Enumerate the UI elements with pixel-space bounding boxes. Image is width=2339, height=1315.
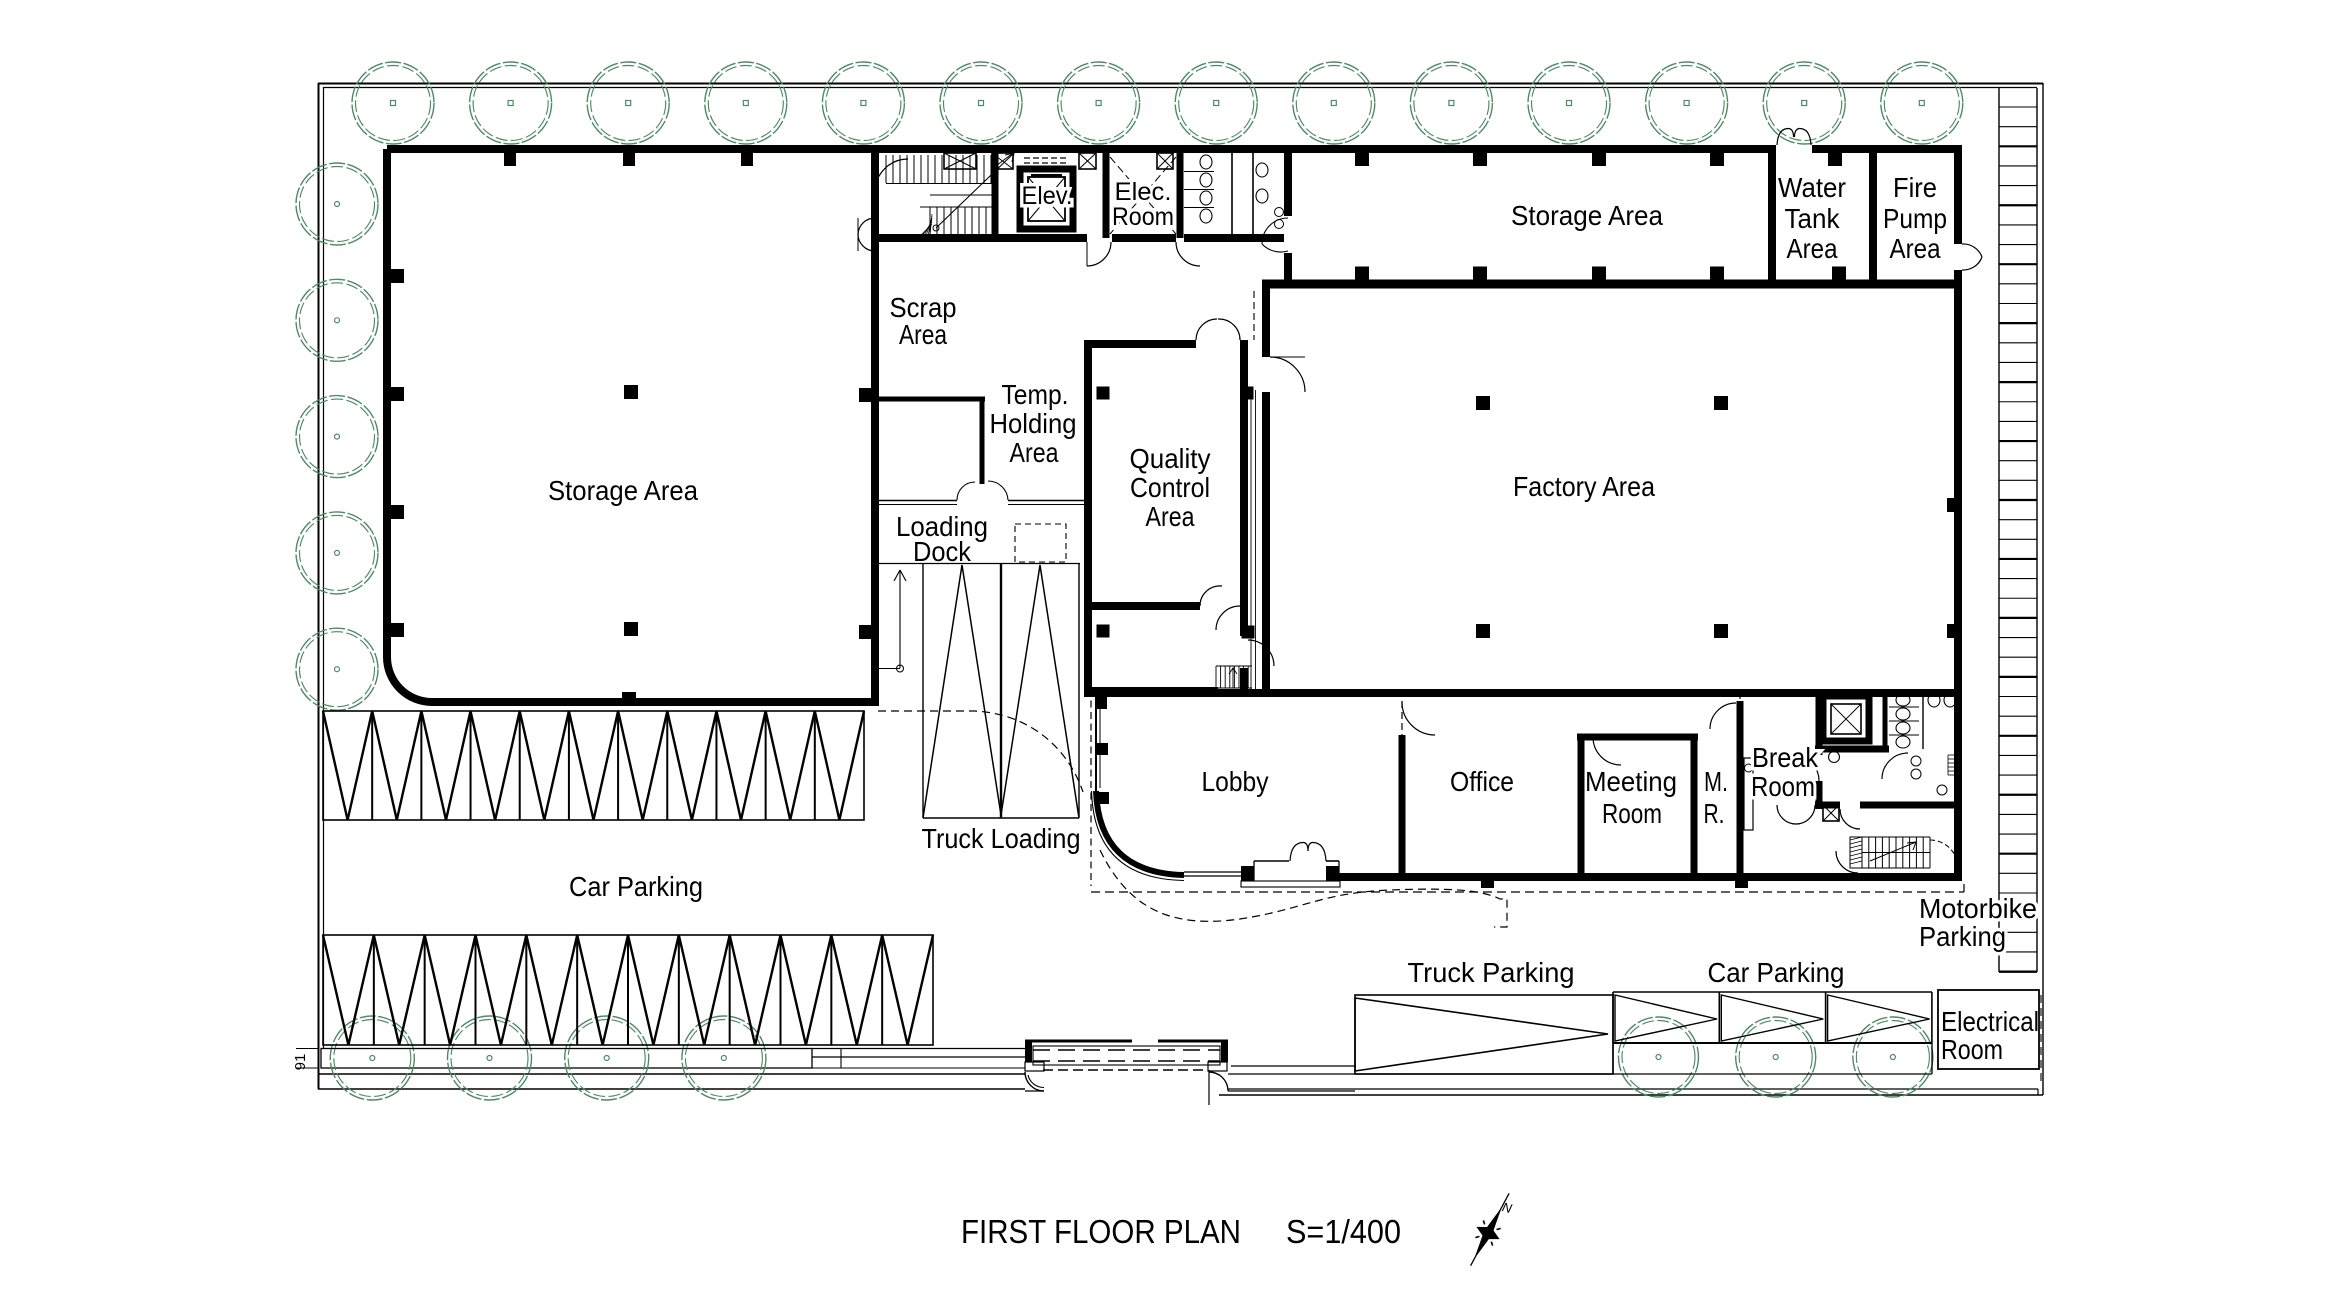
svg-text:Dock: Dock <box>913 536 972 567</box>
svg-text:Tank: Tank <box>1785 203 1841 234</box>
svg-text:Meeting: Meeting <box>1585 766 1677 797</box>
svg-text:Truck Parking: Truck Parking <box>1408 957 1575 988</box>
svg-text:Pump: Pump <box>1883 203 1947 234</box>
svg-text:Truck Loading: Truck Loading <box>922 823 1081 854</box>
svg-text:Room: Room <box>1941 1034 2003 1065</box>
svg-text:Room: Room <box>1112 203 1174 231</box>
svg-text:Area: Area <box>1890 233 1941 264</box>
svg-text:91: 91 <box>292 1054 309 1071</box>
svg-text:Parking: Parking <box>1919 921 2006 952</box>
svg-text:Storage Area: Storage Area <box>1511 200 1663 231</box>
svg-text:R.: R. <box>1704 798 1725 829</box>
svg-text:Factory Area: Factory Area <box>1513 471 1655 502</box>
svg-text:Water: Water <box>1778 172 1846 203</box>
svg-text:FIRST FLOOR PLAN: FIRST FLOOR PLAN <box>961 1213 1241 1250</box>
svg-text:Holding: Holding <box>990 408 1077 439</box>
svg-text:Motorbike: Motorbike <box>1919 893 2037 924</box>
svg-text:Elec.: Elec. <box>1115 178 1172 206</box>
svg-text:S=1/400: S=1/400 <box>1286 1213 1401 1250</box>
svg-text:Area: Area <box>1146 501 1195 532</box>
svg-text:Office: Office <box>1450 766 1514 797</box>
svg-text:Quality: Quality <box>1130 443 1211 474</box>
svg-text:Lobby: Lobby <box>1202 766 1269 797</box>
svg-text:Car Parking: Car Parking <box>1708 957 1845 988</box>
svg-text:Area: Area <box>1787 233 1838 264</box>
svg-text:Area: Area <box>1010 437 1059 468</box>
svg-text:Elev.: Elev. <box>1022 182 1073 210</box>
svg-text:Electrical: Electrical <box>1941 1006 2039 1037</box>
svg-text:Car Parking: Car Parking <box>569 871 703 902</box>
svg-text:Fire: Fire <box>1893 172 1937 203</box>
svg-text:Break: Break <box>1752 742 1819 773</box>
svg-text:Storage Area: Storage Area <box>548 475 698 506</box>
svg-text:Room: Room <box>1602 798 1662 829</box>
svg-text:Area: Area <box>899 319 947 350</box>
svg-text:Control: Control <box>1130 472 1210 503</box>
svg-text:Temp.: Temp. <box>1002 379 1069 410</box>
svg-text:M.: M. <box>1704 766 1728 797</box>
svg-text:Room: Room <box>1751 771 1815 802</box>
